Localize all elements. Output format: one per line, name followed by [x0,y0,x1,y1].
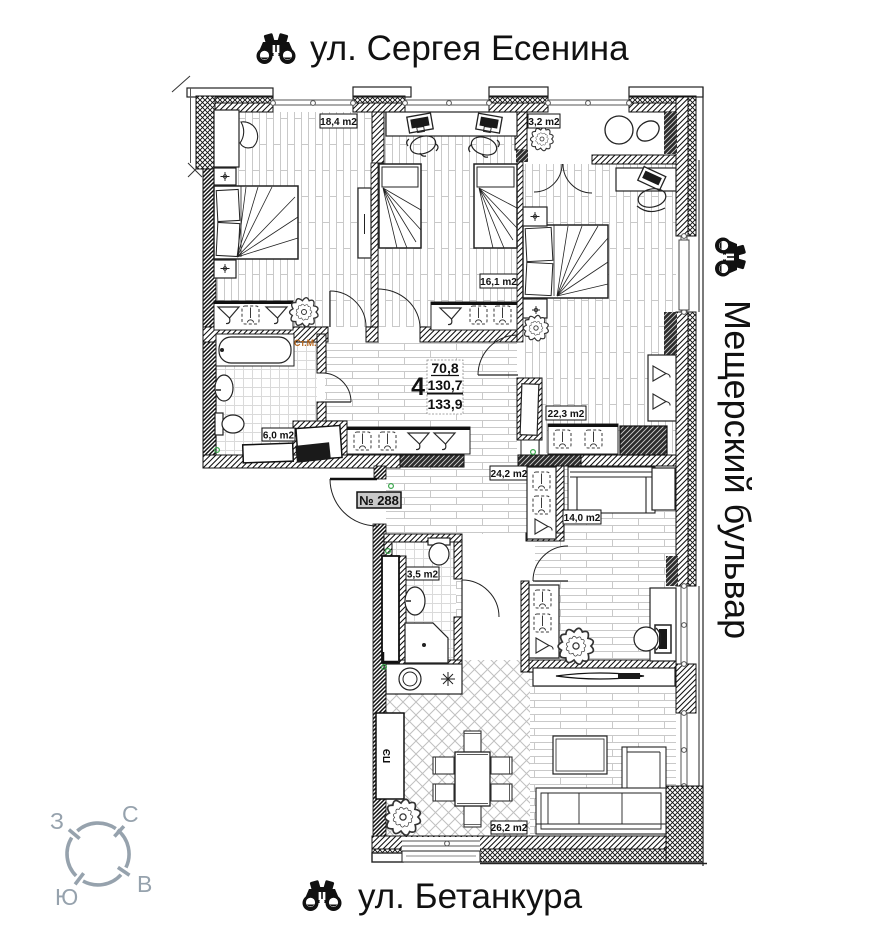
svg-text:130,7: 130,7 [427,377,462,393]
svg-text:14,0 m2: 14,0 m2 [564,513,601,524]
svg-text:Ю: Ю [55,884,78,910]
svg-text:Мещерский бульвар: Мещерский бульвар [717,300,758,639]
svg-text:ул. Бетанкура: ул. Бетанкура [358,877,583,916]
svg-text:3,2 m2: 3,2 m2 [528,117,560,128]
svg-text:С: С [122,801,139,827]
svg-text:133,9: 133,9 [427,396,462,412]
svg-text:В: В [137,871,152,897]
svg-text:18,4 m2: 18,4 m2 [320,117,357,128]
svg-text:№ 288: № 288 [359,493,399,508]
svg-text:4: 4 [411,373,425,401]
svg-text:ул. Сергея Есенина: ул. Сергея Есенина [310,29,629,68]
svg-text:26,2 m2: 26,2 m2 [491,823,528,834]
svg-text:6,0 m2: 6,0 m2 [263,431,295,442]
svg-text:16,1 m2: 16,1 m2 [480,277,517,288]
svg-text:22,3 m2: 22,3 m2 [548,409,585,420]
svg-text:3,5 m2: 3,5 m2 [407,570,439,581]
svg-text:24,2 m2: 24,2 m2 [491,469,528,480]
svg-text:ПЭ: ПЭ [382,749,393,763]
svg-text:70,8: 70,8 [431,360,458,376]
svg-text:Ст.М.: Ст.М. [294,338,317,348]
svg-text:З: З [50,808,64,834]
